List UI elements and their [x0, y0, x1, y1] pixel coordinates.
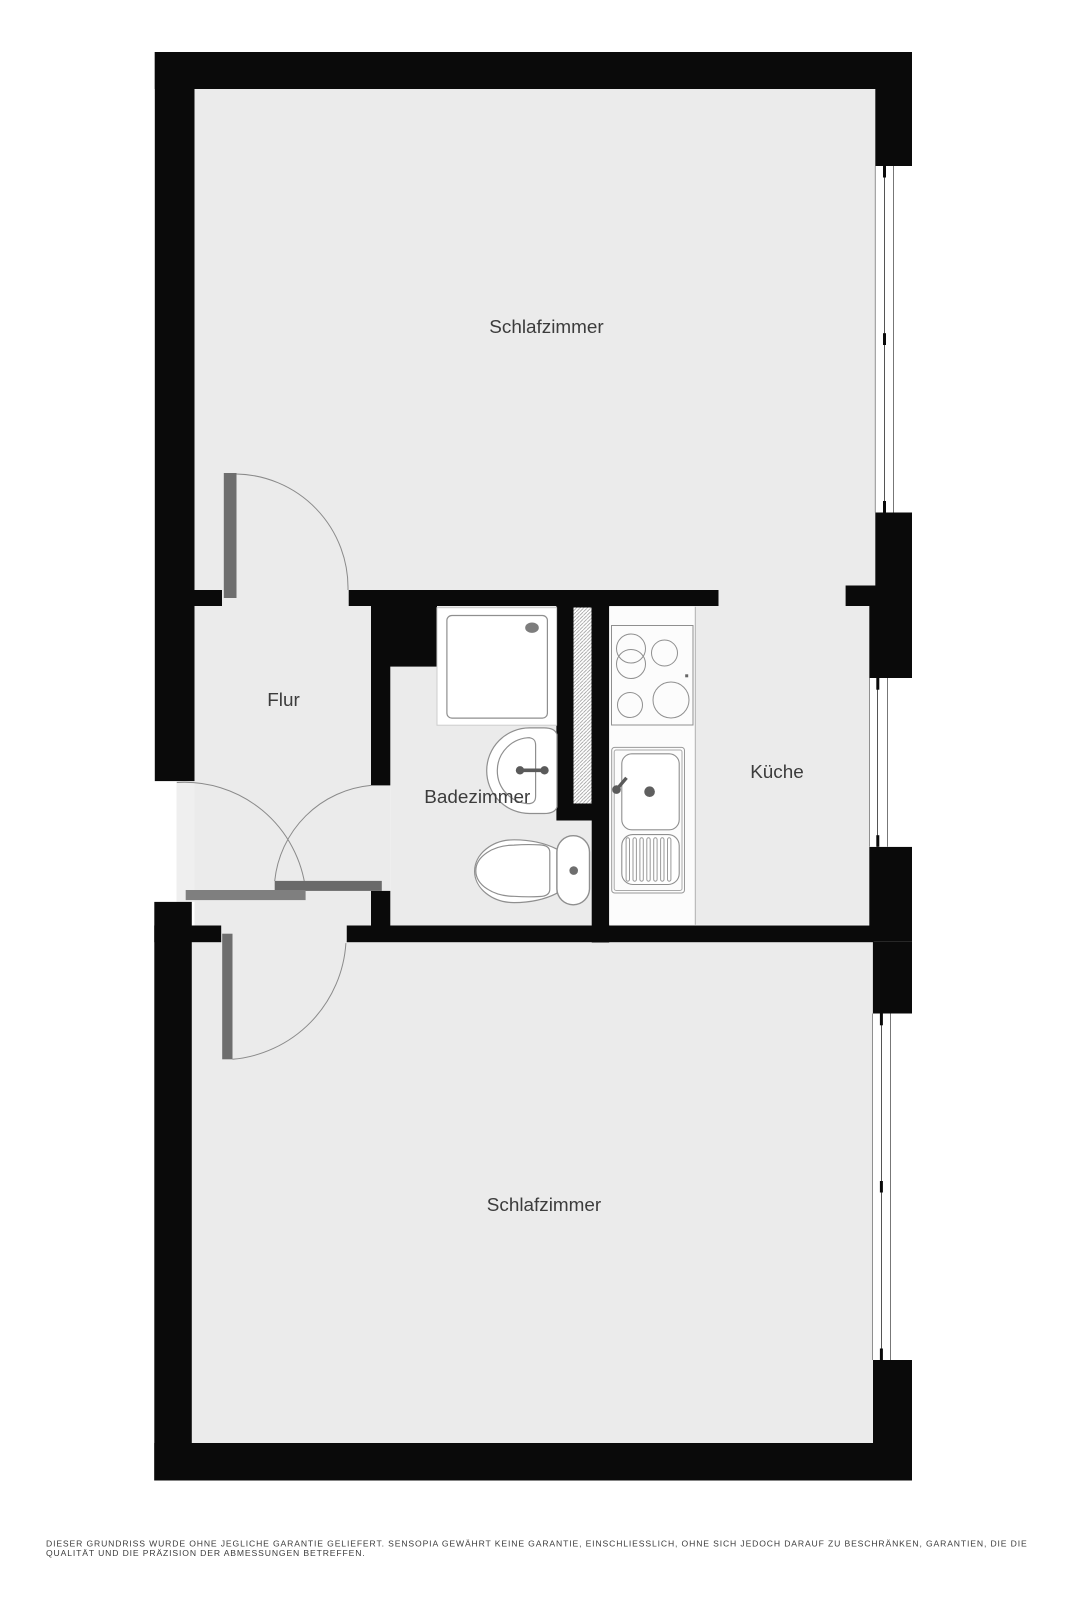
- svg-text:QUALITÄT UND DIE PRÄZISION DER: QUALITÄT UND DIE PRÄZISION DER ABMESSUNG…: [46, 1548, 366, 1558]
- svg-text:Schlafzimmer: Schlafzimmer: [489, 317, 603, 338]
- svg-text:DIESER GRUNDRISS WURDE OHNE JE: DIESER GRUNDRISS WURDE OHNE JEGLICHE GAR…: [46, 1538, 1028, 1548]
- svg-text:Küche: Küche: [750, 762, 804, 783]
- svg-text:Badezimmer: Badezimmer: [424, 787, 530, 808]
- svg-text:Flur: Flur: [267, 690, 300, 711]
- svg-text:Schlafzimmer: Schlafzimmer: [487, 1195, 601, 1216]
